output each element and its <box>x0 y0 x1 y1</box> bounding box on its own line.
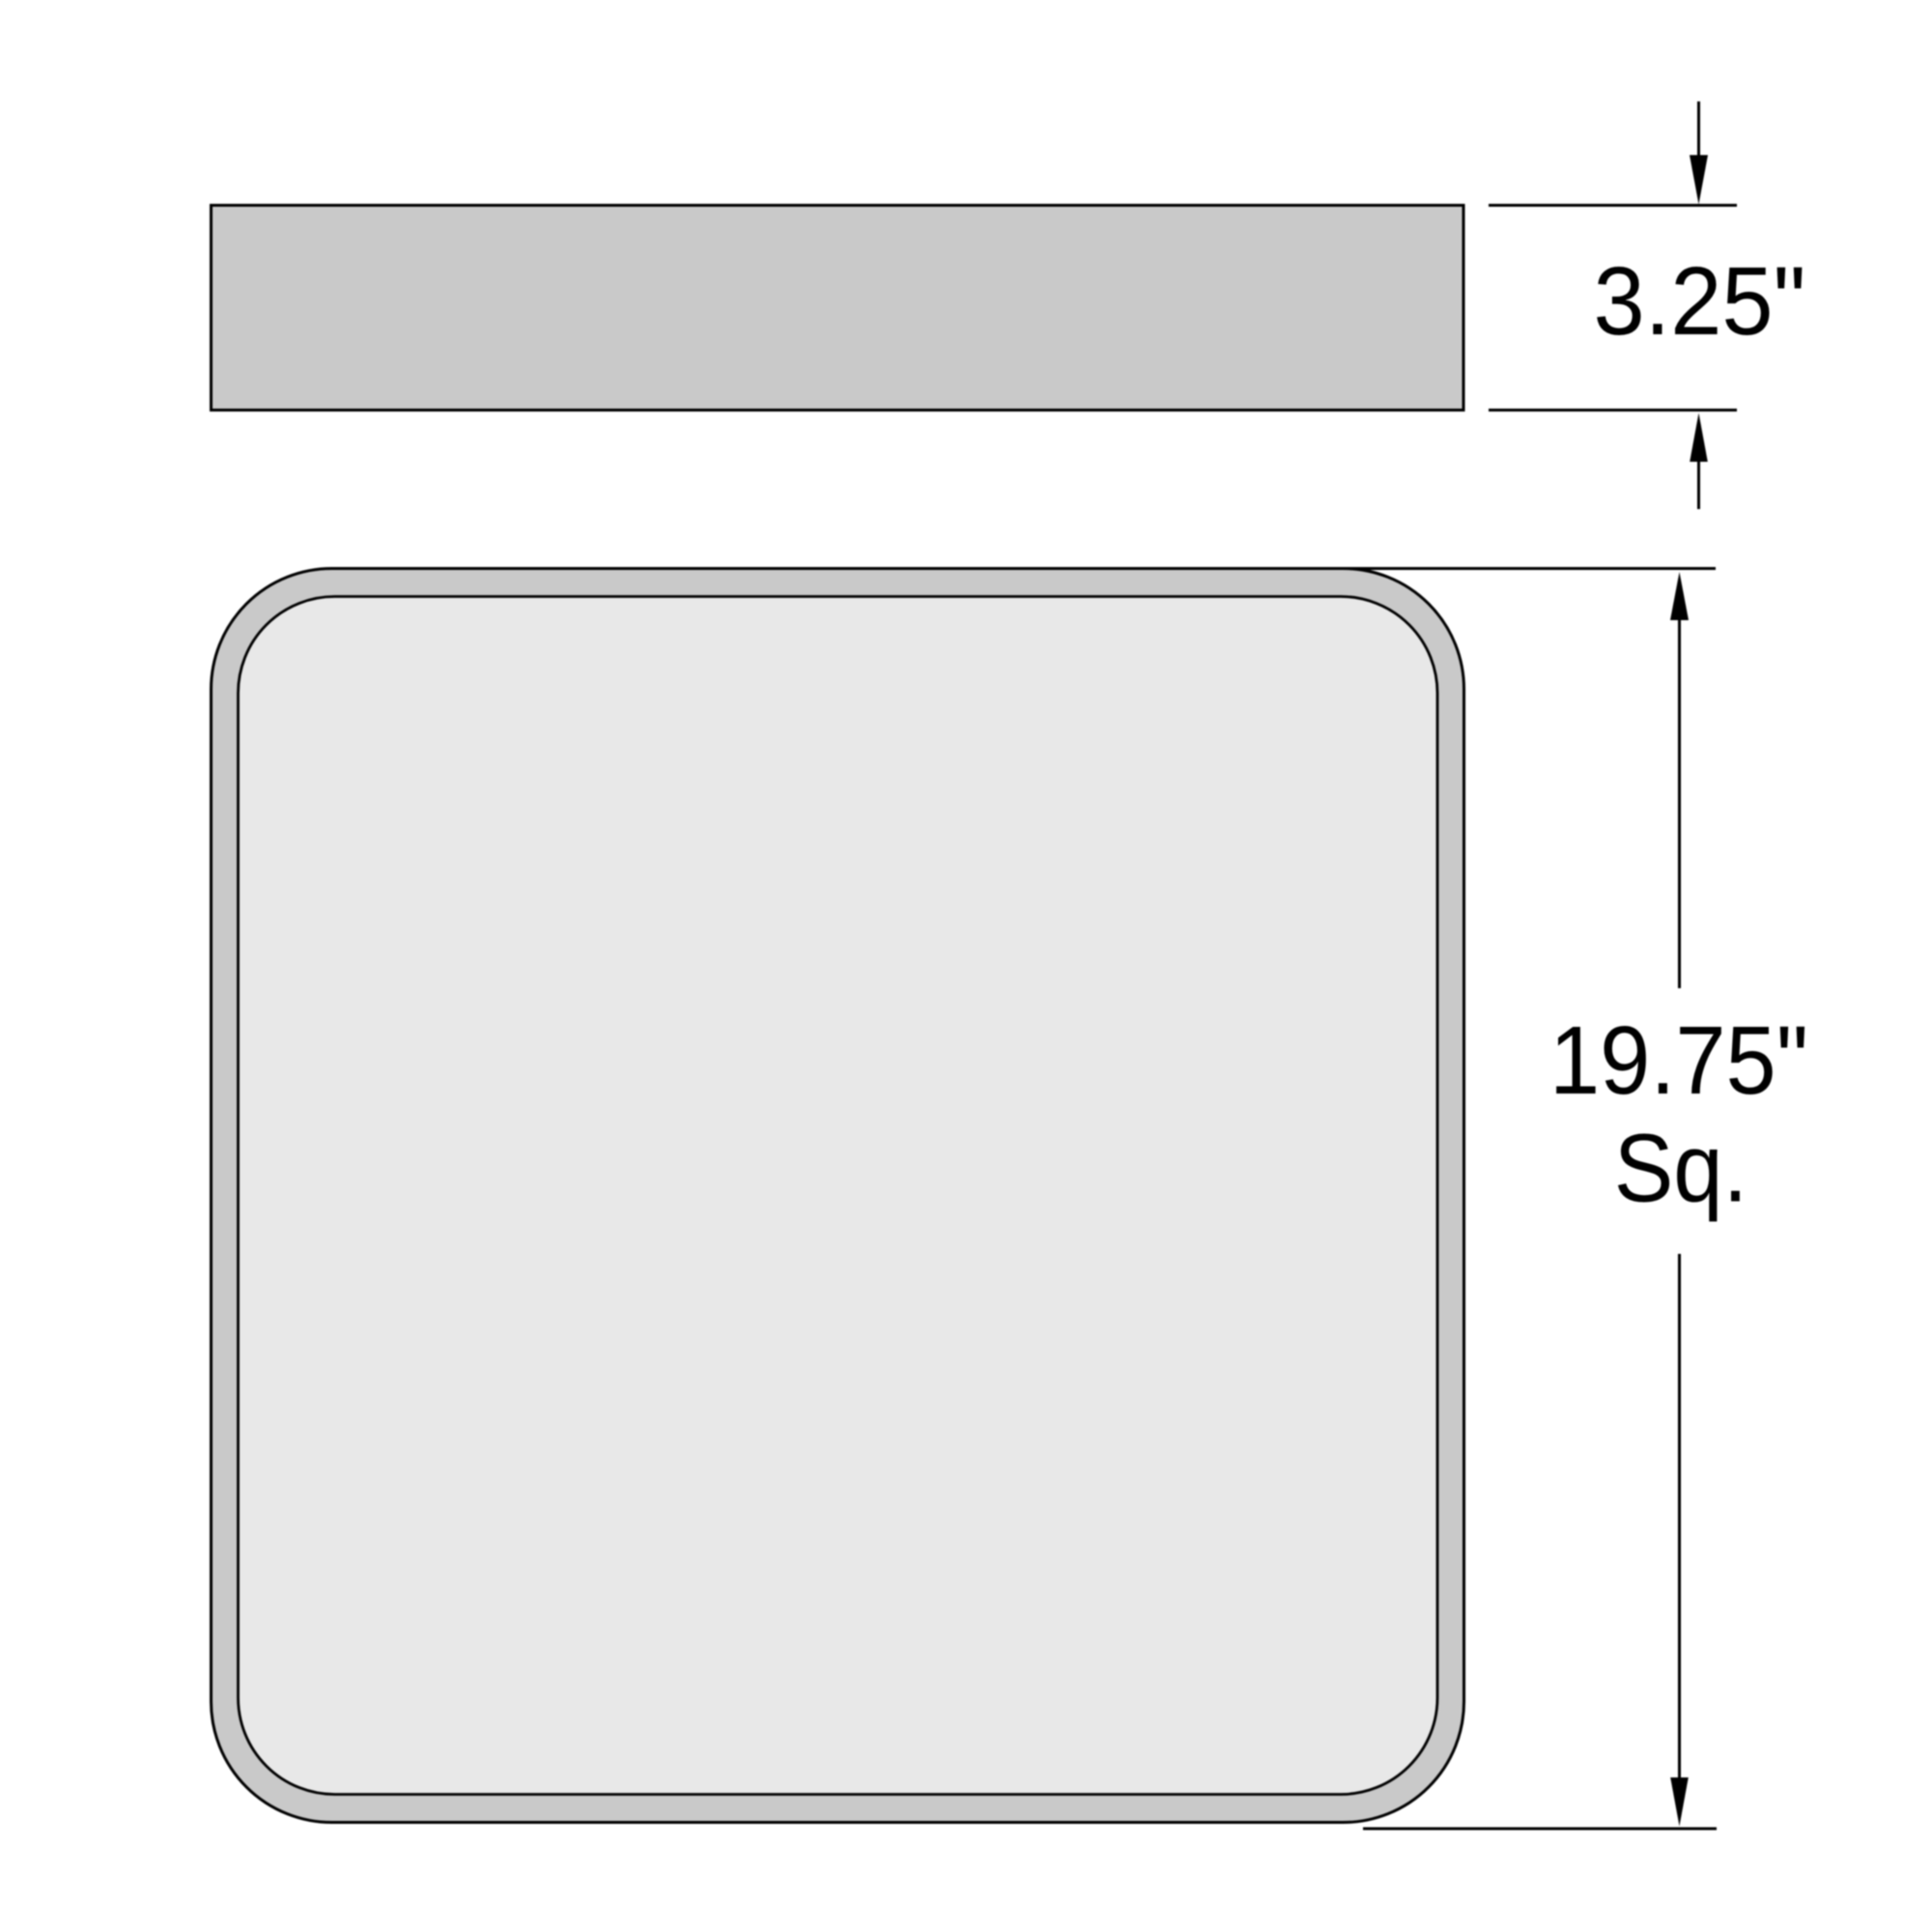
svg-text:Sq.: Sq. <box>1614 1115 1748 1223</box>
svg-text:19.75": 19.75" <box>1549 1007 1808 1115</box>
svg-text:3.25": 3.25" <box>1594 247 1806 355</box>
